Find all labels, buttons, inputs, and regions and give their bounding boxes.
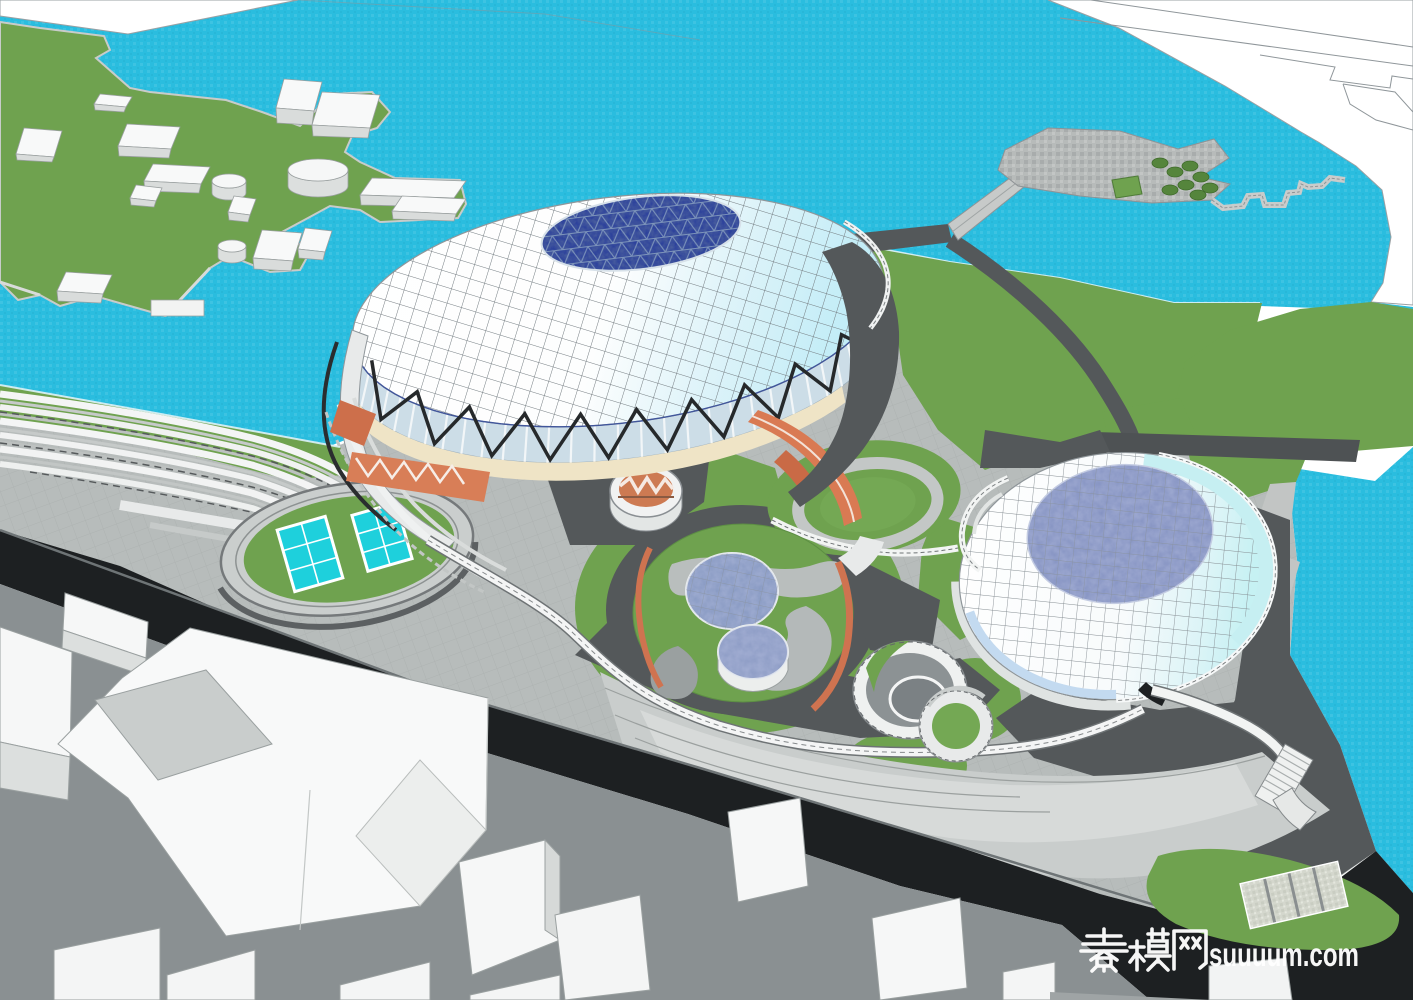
svg-text:suuuum.com: suuuum.com [1209, 936, 1359, 973]
